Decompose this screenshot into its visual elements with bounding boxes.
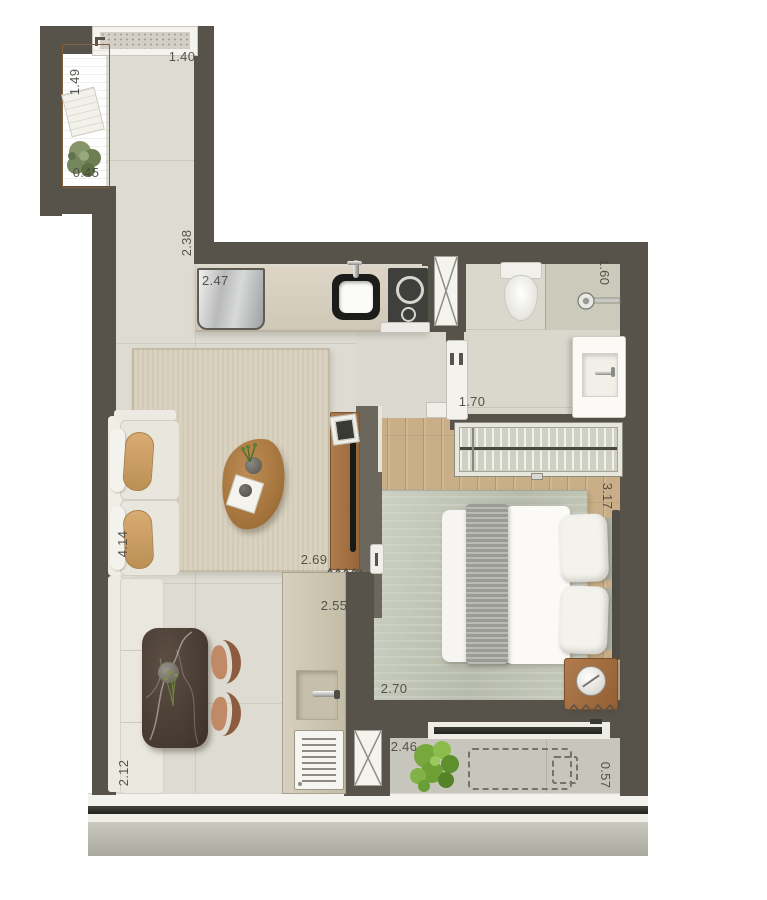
bed-pillow — [559, 585, 609, 655]
bathroom-vanity — [572, 336, 626, 418]
concrete-ledge — [88, 822, 648, 856]
window-sill-inner — [88, 814, 648, 822]
dim-bedroom-length: 3.17 — [599, 476, 615, 516]
book-cover — [335, 419, 356, 441]
door-handle-icon — [450, 353, 454, 365]
burner-small-icon — [401, 307, 416, 322]
hanger-row-icon — [460, 451, 617, 470]
wardrobe-handle-icon — [531, 473, 543, 480]
door-handle-icon — [459, 353, 463, 365]
vase-sprig-icon — [238, 440, 262, 462]
lamp-switch-icon — [582, 674, 600, 687]
kitchen-sink — [332, 274, 380, 320]
decor-bowl-icon — [239, 484, 252, 497]
tv-screen — [350, 440, 356, 552]
hanger-row-icon — [460, 428, 617, 447]
window-glass-band — [88, 806, 648, 814]
dim-entry-bench-length: 1.49 — [67, 62, 83, 102]
entry-door-handle-end — [334, 690, 340, 699]
toilet — [500, 262, 540, 320]
sofa-armrest — [110, 428, 125, 492]
dim-dining-length: 2.12 — [116, 753, 132, 793]
vanity-faucet-icon — [611, 367, 615, 377]
ac-condenser-dashed-small — [552, 756, 578, 784]
dim-bathroom-length: 1.60 — [596, 252, 612, 292]
books-on-console — [329, 413, 360, 445]
toilet-bowl — [504, 275, 538, 321]
bedroom-window-glass — [434, 727, 602, 734]
dim-hall-length: 2.55 — [314, 598, 354, 614]
table-lamp — [576, 666, 606, 696]
duct-shaft-kitchen — [434, 256, 458, 326]
window-handle-icon — [590, 719, 602, 724]
divider-trim — [378, 406, 382, 472]
dim-bedroom-opening-width: 1.70 — [452, 394, 492, 410]
curtain-zigzag-icon — [364, 702, 462, 715]
entry-window-granite-sill — [100, 32, 190, 49]
duct-shaft-service — [354, 730, 382, 786]
shaft-x-icon — [435, 257, 457, 325]
chair-seat — [210, 645, 228, 680]
dim-entry-length: 2.38 — [179, 223, 195, 263]
sink-basin — [339, 281, 373, 313]
bed-knit-blanket — [466, 504, 508, 664]
dim-kitchen-counter-length: 2.47 — [184, 273, 242, 289]
dim-living-width: 2.69 — [294, 552, 334, 568]
dim-bedroom-width: 2.70 — [374, 681, 414, 697]
sofa-cushion — [122, 431, 155, 492]
grille-slats-icon — [302, 738, 336, 782]
cooktop — [388, 268, 428, 326]
counter-edge — [380, 322, 430, 333]
dim-service-balcony-width: 2.46 — [384, 739, 424, 755]
dim-service-balcony-depth: 0.57 — [597, 755, 613, 795]
bed-pillow — [559, 513, 609, 583]
bed-headboard — [612, 510, 620, 660]
curtain-zigzag-icon — [556, 702, 622, 715]
dining-plant-icon — [160, 668, 186, 708]
wardrobe-section-divider — [472, 428, 474, 471]
burner-large-icon — [396, 276, 424, 304]
bedroom-sliding-door-handle — [370, 544, 384, 574]
sink-faucet-icon — [347, 261, 362, 265]
floor-plan-canvas: 1.49 0.45 1.40 2.38 2.47 1.60 1.70 3.17 … — [0, 0, 767, 900]
wall-top-north — [194, 242, 648, 264]
shaft-x-icon — [355, 731, 381, 785]
vent-grille — [294, 730, 344, 790]
door-handle-icon — [375, 553, 378, 566]
dim-entry-width: 1.40 — [162, 49, 202, 65]
grille-screw-icon — [298, 782, 302, 786]
wardrobe-interior — [459, 427, 618, 472]
wardrobe — [454, 422, 623, 477]
dim-living-length: 4.14 — [115, 524, 131, 564]
sofa-top-cap — [114, 410, 176, 420]
dim-entry-bench-depth: 0.45 — [66, 165, 106, 181]
wall-bench-niche-bottom — [40, 186, 116, 214]
chair-seat — [210, 696, 228, 731]
wardrobe-rod-icon — [460, 447, 617, 450]
